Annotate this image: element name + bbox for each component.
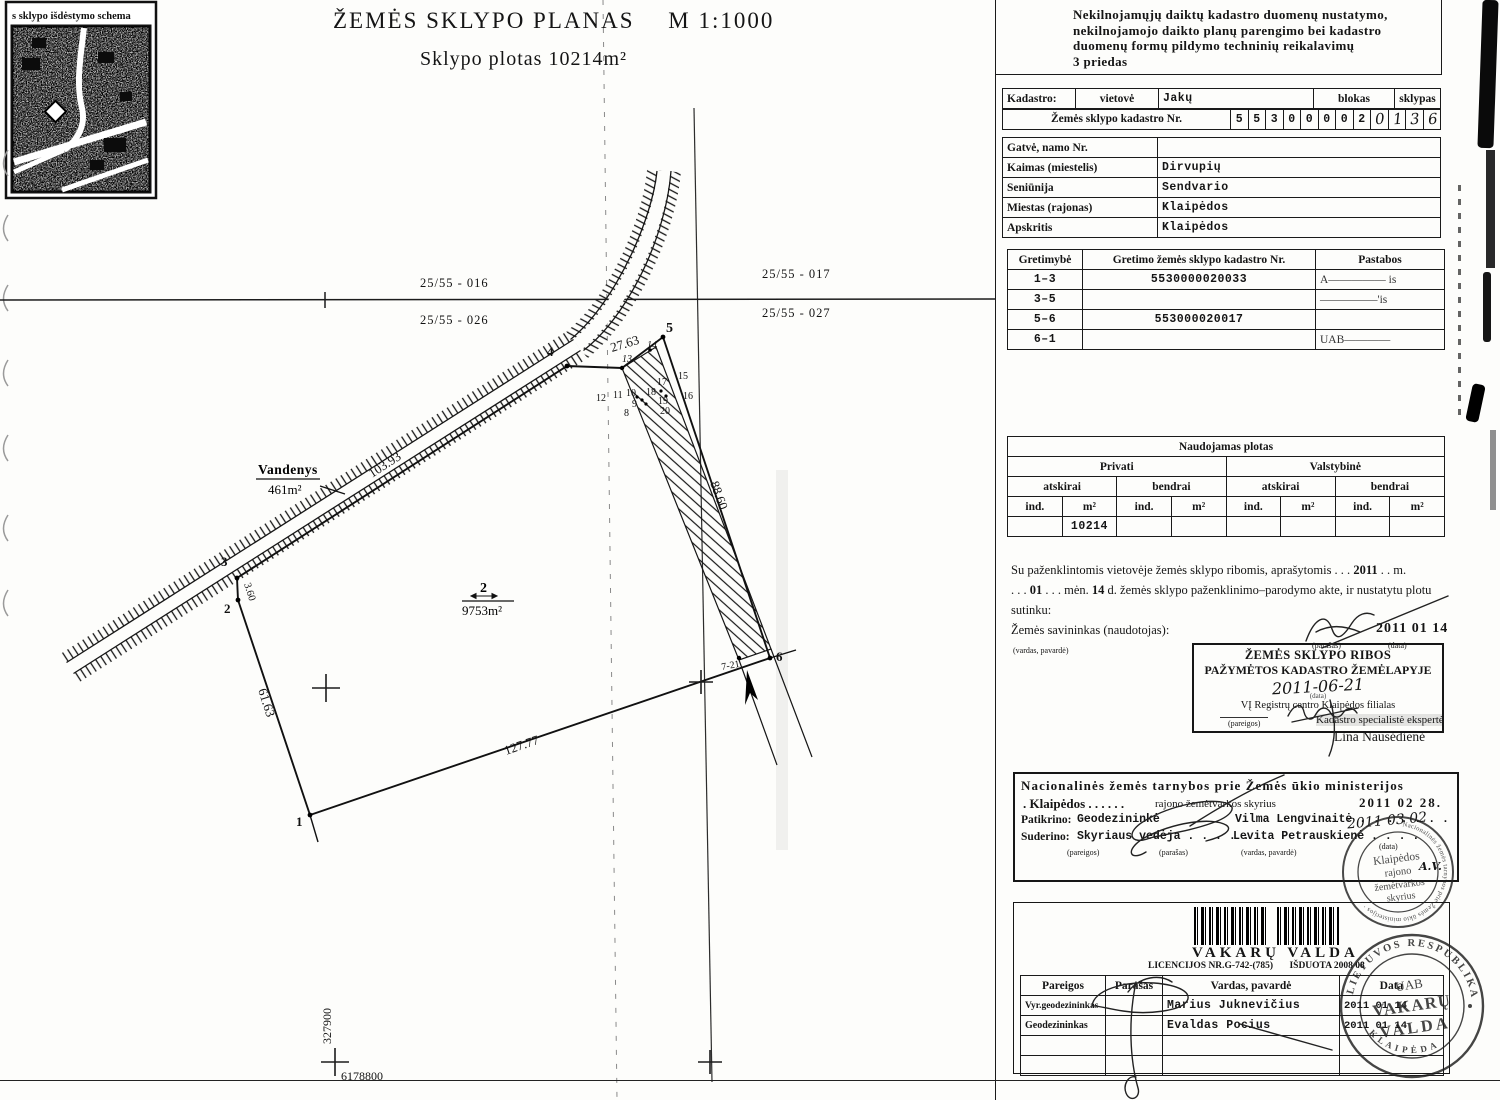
specialist-title: Kadastro specialistė ekspertė — [1316, 714, 1444, 726]
national-line-2b: rajono žemėtvarkos skyrius — [1155, 798, 1276, 810]
grid-label-017: 25/55 - 017 — [762, 267, 831, 281]
cell — [1106, 996, 1163, 1016]
grid-label-026: 25/55 - 026 — [420, 313, 489, 327]
agreement-year: 2011 — [1353, 563, 1377, 577]
cell — [1226, 517, 1281, 537]
header-cell: atskirai — [1008, 477, 1117, 497]
kadastro-nr-table: Žemės sklypo kadastro Nr. 5 5 3 0 0 0 0 … — [1002, 109, 1441, 130]
stamp-center-line: UAB — [1394, 975, 1424, 994]
point-label-9: 9 — [632, 399, 637, 410]
round-stamp-company: LIETUVOS RESPUBLIKA K L A I P Ė D A UAB … — [1337, 931, 1487, 1081]
label-cell: Seniūnija — [1003, 178, 1158, 198]
cell — [1021, 1056, 1106, 1076]
point-label-12: 12 — [596, 393, 606, 404]
inset-map: s sklypo išdėstymo schema — [6, 2, 156, 198]
point-label-6: 6 — [776, 649, 783, 664]
cell — [1281, 517, 1336, 537]
dim-2-3: 3.60 — [241, 582, 257, 603]
header-cell: Valstybinė — [1226, 457, 1445, 477]
header-cell: ind. — [1117, 497, 1172, 517]
kadastro-digit: 2 — [1353, 109, 1371, 129]
header-cell: bendrai — [1335, 477, 1444, 497]
cell: Vyr.geodezininkas — [1021, 996, 1106, 1016]
value-cell: Sendvario — [1158, 178, 1441, 198]
point-label-4: 4 — [547, 344, 554, 359]
suderino-label: Suderino: — [1021, 831, 1070, 843]
cell — [1163, 1056, 1340, 1076]
cell — [1106, 1056, 1163, 1076]
dim-1-6: 127.77 — [502, 732, 541, 758]
point-label-17: 17 — [657, 377, 667, 388]
cell: 5–6 — [1008, 310, 1083, 330]
page-bottom-line — [0, 1080, 1500, 1081]
point-label-14: 14 — [647, 340, 657, 351]
scanned-cadastral-plan: s sklypo išdėstymo schema — [0, 0, 1500, 1100]
address-table: Gatvė, namo Nr. Kaimas (miestelis) Dirvu… — [1002, 137, 1441, 238]
inset-label: s sklypo išdėstymo schema — [12, 11, 131, 22]
header-cell: m² — [1281, 497, 1336, 517]
kadastro-digit: 5 — [1231, 109, 1249, 129]
cell: Geodezininkas — [1021, 1016, 1106, 1036]
vandenys-area: 461m² — [268, 482, 302, 497]
gretimybe-table: Gretimybė Gretimo žemės sklypo kadastro … — [1007, 249, 1445, 350]
suderino-role: Skyriaus vedėja . . . . . — [1077, 830, 1250, 843]
header-line-4: 3 priedas — [1073, 54, 1443, 70]
dim-4-5: 27.63 — [608, 332, 640, 355]
cell — [1335, 517, 1390, 537]
point-label-7-21: 7-21 — [721, 659, 741, 673]
coord-x-label: 327900 — [320, 1008, 334, 1044]
parasas-label: (parašas) — [1159, 848, 1188, 857]
scan-edge-artifact — [1486, 150, 1495, 268]
area-value-cell: 10214 — [1062, 517, 1117, 537]
point-label-5: 5 — [666, 321, 673, 336]
header-cell: atskirai — [1226, 477, 1335, 497]
page-divider-line — [995, 0, 996, 1100]
scan-edge-artifact — [1465, 383, 1486, 423]
cell — [1117, 517, 1172, 537]
cell: 6–1 — [1008, 330, 1083, 350]
label-cell: Apskritis — [1003, 218, 1158, 238]
quarter-grid-line — [0, 292, 995, 308]
kadastro-table: Kadastro: vietovė Jakų blokas sklypas — [1002, 88, 1441, 109]
scan-edge-artifact — [1477, 0, 1498, 148]
patikrino-label: Patikrino: — [1021, 814, 1071, 826]
specialist-name: Lina Nausėdienė — [1334, 729, 1425, 745]
agreement-day: 14 — [1092, 583, 1105, 597]
label-cell: Gatvė, namo Nr. — [1003, 138, 1158, 158]
kadastro-nr-label: Žemės sklypo kadastro Nr. — [1003, 109, 1231, 129]
point-label-18: 18 — [646, 387, 656, 398]
value-cell: Klaipėdos — [1158, 218, 1441, 238]
page-subtitle: Sklypo plotas 10214m² — [420, 48, 627, 71]
vardas-label: (vardas, pavardė) — [1241, 848, 1297, 857]
barcode — [1194, 907, 1267, 945]
header-cell: Pastabos — [1316, 250, 1445, 270]
vandenys-name: Vandenys — [258, 462, 318, 477]
kadastro-digit-handwritten: 1 — [1388, 109, 1406, 129]
header-cell: Pareigos — [1021, 976, 1106, 996]
scan-edge-artifact — [1483, 272, 1491, 342]
point-label-15: 15 — [678, 371, 688, 382]
header-cell: m² — [1390, 497, 1445, 517]
cell: 553000020017 — [1083, 310, 1316, 330]
point-label-2: 2 — [224, 601, 231, 616]
value-cell — [1158, 138, 1441, 158]
cell: A————— is — [1316, 270, 1445, 290]
cell: UAB———— — [1316, 330, 1445, 350]
header-line-1: Nekilnojamųjų daiktų kadastro duomenų nu… — [1073, 7, 1443, 23]
title-main: ŽEMĖS SKLYPO PLANAS — [333, 8, 635, 33]
stamp-center-line: rajono — [1384, 865, 1412, 879]
pareigos-label: (pareigos) — [1067, 848, 1099, 857]
kadastro-label-cell: Kadastro: — [1003, 89, 1076, 109]
header-cell: m² — [1171, 497, 1226, 517]
header-cell: ind. — [1335, 497, 1390, 517]
naudojamas-table: Naudojamas plotas Privati Valstybinė ats… — [1007, 436, 1445, 537]
company-name: VAKARŲ VALDA — [1192, 945, 1342, 962]
cell — [1171, 517, 1226, 537]
cell — [1316, 310, 1445, 330]
cell — [1008, 517, 1063, 537]
agreement-text: Su paženklintomis vietovėje žemės sklypo… — [1011, 563, 1350, 577]
arrow-marker — [745, 670, 758, 705]
point-label-11: 11 — [613, 390, 623, 401]
ribos-org: VĮ Registrų centro Klaipėdos filialas — [1194, 700, 1442, 711]
blokas-label-cell: blokas — [1314, 89, 1395, 109]
sklypas-label-cell: sklypas — [1395, 89, 1441, 109]
national-line-2a: . Klaipėdos . . . . . . — [1023, 796, 1124, 812]
fold-line — [603, 0, 617, 1100]
point-label-20: 20 — [660, 406, 670, 417]
plan-drawing: s sklypo išdėstymo schema — [0, 0, 1005, 1100]
point-label-10: 10 — [626, 388, 636, 399]
header-cell: Privati — [1008, 457, 1227, 477]
point-label-13: 13 — [622, 354, 632, 365]
scan-edge-artifact — [1490, 430, 1496, 510]
kadastro-digit: 5 — [1248, 109, 1266, 129]
kadastro-digit: 0 — [1318, 109, 1336, 129]
kadastro-digit: 0 — [1336, 109, 1354, 129]
header-cell: Parašas — [1106, 976, 1163, 996]
kadastro-digit: 3 — [1266, 109, 1284, 129]
survey-vertical-line — [694, 108, 712, 1082]
label-cell: Kaimas (miestelis) — [1003, 158, 1158, 178]
cell: —————'is — [1316, 290, 1445, 310]
vardas-label: (vardas, pavardė) — [1013, 646, 1069, 655]
cell — [1390, 517, 1445, 537]
point-label-8: 8 — [624, 408, 629, 419]
cell: 3–5 — [1008, 290, 1083, 310]
value-cell: Klaipėdos — [1158, 198, 1441, 218]
point-label-1: 1 — [296, 814, 303, 829]
cell — [1106, 1016, 1163, 1036]
agreement-month: 01 — [1030, 583, 1043, 597]
kadastro-digit: 0 — [1301, 109, 1319, 129]
grid-label-016: 25/55 - 016 — [420, 276, 489, 290]
header-cell: ind. — [1226, 497, 1281, 517]
national-date-stamp: 2011 02 28. — [1359, 795, 1442, 811]
point-label-16: 16 — [683, 391, 693, 402]
header-line-2: nekilnojamojo daikto planų parengimo bei… — [1073, 23, 1443, 39]
kadastro-digit-handwritten: 3 — [1406, 109, 1424, 129]
ribos-line-1: ŽEMĖS SKLYPO RIBOS — [1194, 648, 1442, 663]
stamp-center-line: Klaipėdos — [1373, 850, 1421, 868]
kadastro-digit: 0 — [1283, 109, 1301, 129]
license-line: LICENCIJOS NR.G-742-(785) IŠDUOTA 2008 0… — [1148, 961, 1365, 971]
national-line-1: Nacionalinės žemės tarnybos prie Žemės ū… — [1021, 778, 1404, 794]
kadastro-digit-handwritten: 0 — [1371, 109, 1389, 129]
title-scale: M 1:1000 — [668, 8, 774, 33]
dim-1-2: 61.63 — [255, 686, 278, 718]
cell — [1021, 1036, 1106, 1056]
cell — [1083, 330, 1316, 350]
header-cell: Gretimo žemės sklypo kadastro Nr. — [1083, 250, 1316, 270]
ditch-band — [67, 171, 672, 674]
cell: Marius Juknevičius — [1163, 996, 1340, 1016]
header-cell: m² — [1062, 497, 1117, 517]
value-cell: Dirvupių — [1158, 158, 1441, 178]
cell — [1163, 1036, 1340, 1056]
grid-crosses — [312, 670, 722, 1076]
header-cell: Gretimybė — [1008, 250, 1083, 270]
vietove-label-cell: vietovė — [1076, 89, 1159, 109]
label-cell: Miestas (rajonas) — [1003, 198, 1158, 218]
cell: 1–3 — [1008, 270, 1083, 290]
point-label-3: 3 — [221, 554, 228, 569]
patikrino-role: Geodezininkė — [1077, 813, 1160, 826]
page-title: ŽEMĖS SKLYPO PLANAS M 1:1000 — [333, 8, 774, 34]
pareigos-label: (pareigos) — [1220, 717, 1268, 728]
page-edge-marks — [4, 150, 9, 616]
cell — [1106, 1036, 1163, 1056]
cell: Evaldas Pocius — [1163, 1016, 1340, 1036]
grid-label-027: 25/55 - 027 — [762, 306, 831, 320]
form-header-box: Nekilnojamųjų daiktų kadastro duomenų nu… — [995, 0, 1442, 75]
cell — [1083, 290, 1316, 310]
barcode — [1277, 907, 1339, 945]
header-cell: Vardas, pavardė — [1163, 976, 1340, 996]
header-line-3: duomenų formų pildymo techninių reikalav… — [1073, 38, 1443, 54]
svg-text:9753m²: 9753m² — [462, 603, 502, 618]
vietove-value-cell: Jakų — [1159, 89, 1314, 109]
table-title-cell: Naudojamas plotas — [1008, 437, 1445, 457]
scan-edge-artifact — [1458, 185, 1461, 415]
cell: 5530000020033 — [1083, 270, 1316, 290]
header-cell: ind. — [1008, 497, 1063, 517]
owner-date: 2011 01 14 — [1376, 621, 1448, 637]
svg-text:2: 2 — [480, 581, 487, 596]
plot-area-label: 2 9753m² — [462, 581, 514, 618]
header-cell: bendrai — [1117, 477, 1226, 497]
kadastro-digit-handwritten: 6 — [1423, 109, 1441, 129]
license-number: LICENCIJOS NR.G-742-(785) — [1148, 961, 1273, 971]
